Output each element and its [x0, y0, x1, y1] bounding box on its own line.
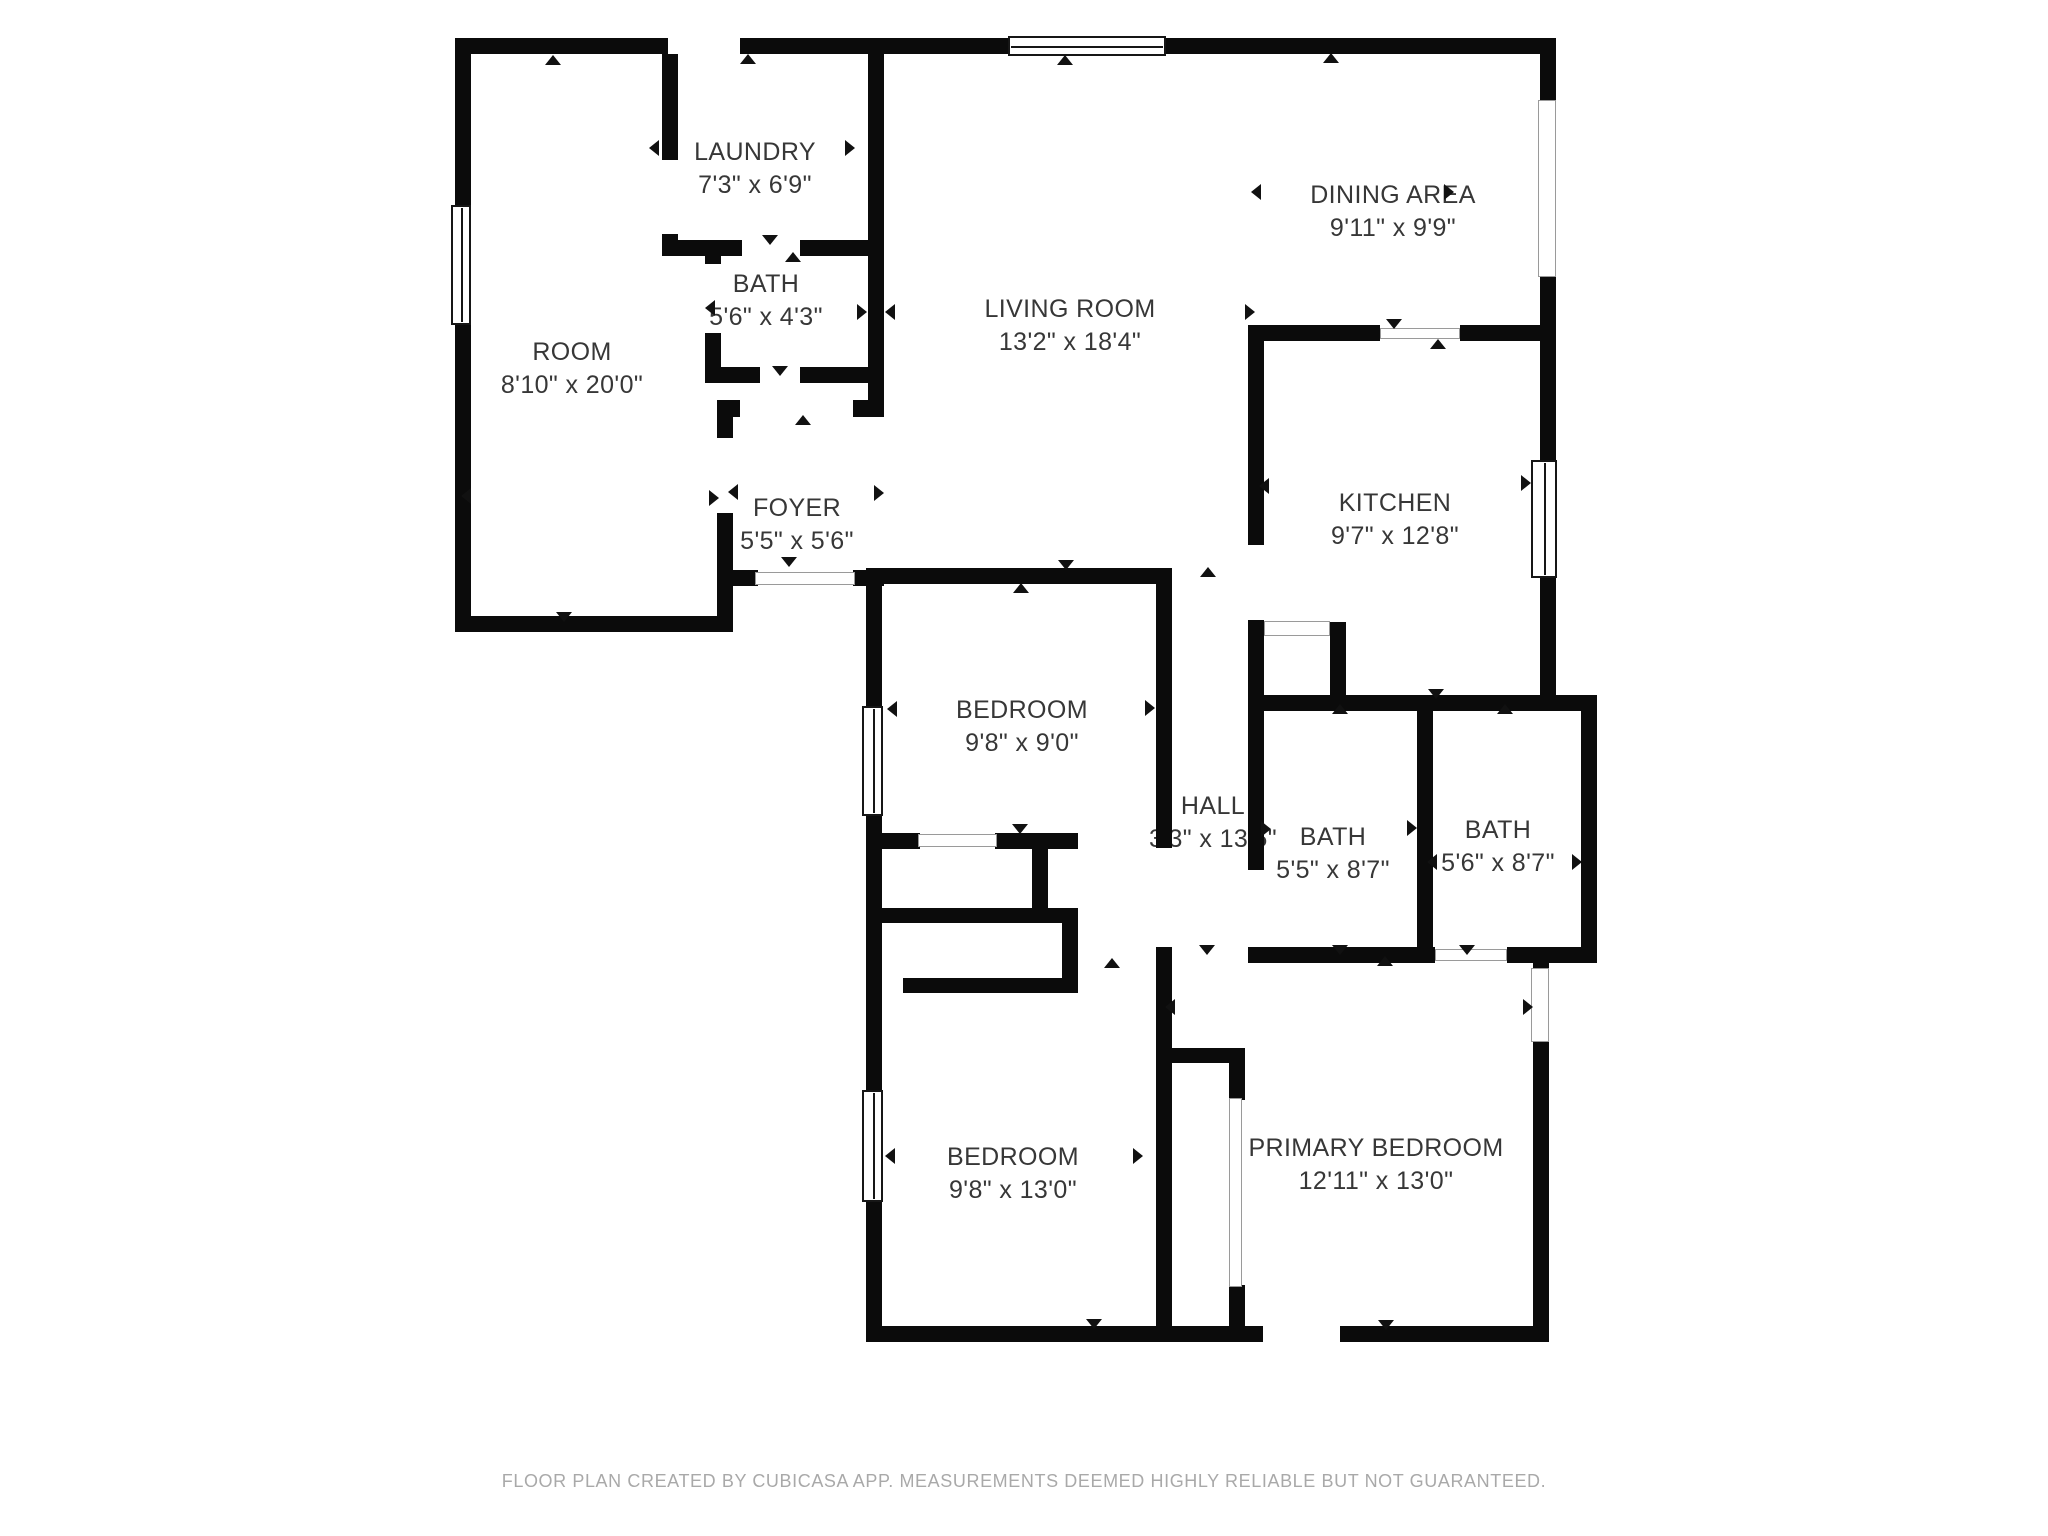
wall: [866, 1326, 1263, 1342]
door-direction-arrow-icon: [1407, 820, 1417, 836]
door-direction-arrow-icon: [1133, 1148, 1143, 1164]
door-direction-arrow-icon: [1145, 700, 1155, 716]
room-dims: 9'7" x 12'8": [1225, 520, 1565, 553]
door-direction-arrow-icon: [1245, 304, 1255, 320]
wall: [1417, 711, 1433, 947]
wall: [455, 38, 668, 54]
door-direction-arrow-icon: [1058, 560, 1074, 570]
wall: [1540, 38, 1556, 102]
window: [862, 1090, 883, 1202]
door-direction-arrow-icon: [1428, 689, 1444, 699]
door-opening: [1531, 968, 1549, 1042]
wall: [1340, 1326, 1549, 1342]
wall: [1062, 908, 1078, 993]
floor-plan: ROOM8'10" x 20'0" LAUNDRY7'3" x 6'9" BAT…: [0, 0, 2048, 1536]
wall: [866, 815, 882, 1092]
room-name: BATH: [596, 268, 936, 301]
window-pane-line: [461, 208, 463, 322]
wall: [455, 616, 733, 632]
wall: [1581, 695, 1597, 963]
door-direction-arrow-icon: [1521, 475, 1531, 491]
wall: [1229, 1048, 1245, 1100]
door-opening: [1538, 100, 1556, 277]
window: [1008, 36, 1166, 56]
door-direction-arrow-icon: [1259, 478, 1269, 494]
wall: [866, 1200, 882, 1342]
door-opening: [1380, 328, 1460, 339]
wall: [995, 833, 1078, 849]
room-dims: 8'10" x 20'0": [402, 369, 742, 402]
door-direction-arrow-icon: [1012, 824, 1028, 834]
room-label-kitchen: KITCHEN9'7" x 12'8": [1225, 487, 1565, 553]
door-direction-arrow-icon: [740, 54, 756, 64]
room-name: LIVING ROOM: [900, 293, 1240, 326]
wall: [1032, 848, 1048, 908]
door-direction-arrow-icon: [1200, 567, 1216, 577]
room-dims: 9'8" x 13'0": [843, 1174, 1183, 1207]
wall: [1166, 38, 1556, 54]
wall: [705, 256, 721, 264]
wall: [800, 367, 884, 383]
door-opening: [755, 572, 855, 585]
window-pane-line: [873, 1093, 875, 1199]
door-opening: [1229, 1098, 1242, 1287]
window-pane-line: [873, 709, 875, 813]
door-direction-arrow-icon: [795, 415, 811, 425]
door-opening: [1264, 621, 1330, 636]
door-direction-arrow-icon: [1332, 945, 1348, 955]
door-direction-arrow-icon: [1057, 55, 1073, 65]
room-name: BEDROOM: [852, 694, 1192, 727]
room-dims: 12'11" x 13'0": [1206, 1165, 1546, 1198]
room-label-room: ROOM8'10" x 20'0": [402, 336, 742, 402]
wall: [740, 38, 1008, 54]
room-name: KITCHEN: [1225, 487, 1565, 520]
room-label-dining-area: DINING AREA9'11" x 9'9": [1223, 179, 1563, 245]
wall: [882, 908, 1078, 923]
room-label-living-room: LIVING ROOM13'2" x 18'4": [900, 293, 1240, 359]
room-label-bedroom-1: BEDROOM9'8" x 9'0": [852, 694, 1192, 760]
wall: [455, 38, 471, 205]
door-direction-arrow-icon: [1378, 1320, 1394, 1330]
wall: [1533, 947, 1549, 970]
door-opening: [918, 834, 997, 847]
room-label-bath-ensuite: BATH5'6" x 8'7": [1328, 814, 1668, 880]
door-direction-arrow-icon: [1497, 704, 1513, 714]
wall: [1248, 325, 1264, 545]
door-direction-arrow-icon: [545, 55, 561, 65]
room-name: FOYER: [627, 492, 967, 525]
room-dims: 5'6" x 8'7": [1328, 847, 1668, 880]
door-direction-arrow-icon: [705, 300, 715, 316]
room-dims: 5'5" x 5'6": [627, 525, 967, 558]
window: [451, 205, 471, 325]
door-direction-arrow-icon: [1523, 999, 1533, 1015]
door-direction-arrow-icon: [1013, 583, 1029, 593]
door-direction-arrow-icon: [762, 235, 778, 245]
door-direction-arrow-icon: [1199, 945, 1215, 955]
wall: [455, 325, 471, 632]
door-direction-arrow-icon: [885, 304, 895, 320]
door-direction-arrow-icon: [1459, 945, 1475, 955]
room-name: ROOM: [402, 336, 742, 369]
wall: [662, 54, 678, 160]
room-dims: 13'2" x 18'4": [900, 326, 1240, 359]
door-direction-arrow-icon: [1165, 999, 1175, 1015]
room-dims: 9'11" x 9'9": [1223, 212, 1563, 245]
wall: [1533, 1040, 1549, 1342]
door-direction-arrow-icon: [1386, 319, 1402, 329]
door-direction-arrow-icon: [785, 252, 801, 262]
wall: [1460, 325, 1556, 341]
door-direction-arrow-icon: [709, 490, 719, 506]
wall: [717, 400, 733, 438]
wall: [1229, 1285, 1245, 1342]
wall: [866, 568, 1172, 584]
wall: [717, 586, 733, 632]
footer-disclaimer: FLOOR PLAN CREATED BY CUBICASA APP. MEAS…: [0, 1471, 2048, 1492]
door-direction-arrow-icon: [556, 612, 572, 622]
wall: [1248, 325, 1380, 341]
room-dims: 9'8" x 9'0": [852, 727, 1192, 760]
window-pane-line: [1011, 46, 1163, 48]
door-direction-arrow-icon: [1332, 704, 1348, 714]
wall: [882, 833, 920, 849]
room-name: BATH: [1328, 814, 1668, 847]
wall: [1156, 568, 1172, 848]
wall: [868, 54, 884, 400]
window: [1531, 460, 1557, 578]
door-direction-arrow-icon: [1323, 53, 1339, 63]
door-direction-arrow-icon: [728, 484, 738, 500]
door-direction-arrow-icon: [1261, 821, 1271, 837]
door-direction-arrow-icon: [649, 140, 659, 156]
door-direction-arrow-icon: [1430, 339, 1446, 349]
door-direction-arrow-icon: [845, 140, 855, 156]
wall: [1540, 575, 1556, 711]
door-direction-arrow-icon: [1572, 854, 1582, 870]
wall: [1248, 695, 1597, 711]
room-name: PRIMARY BEDROOM: [1206, 1132, 1546, 1165]
room-name: DINING AREA: [1223, 179, 1563, 212]
door-direction-arrow-icon: [885, 1148, 895, 1164]
door-direction-arrow-icon: [874, 485, 884, 501]
window: [862, 706, 883, 816]
door-direction-arrow-icon: [1377, 956, 1393, 966]
door-direction-arrow-icon: [1104, 958, 1120, 968]
room-label-foyer: FOYER5'5" x 5'6": [627, 492, 967, 558]
wall: [717, 513, 733, 586]
door-direction-arrow-icon: [1444, 184, 1454, 200]
door-direction-arrow-icon: [857, 304, 867, 320]
door-direction-arrow-icon: [781, 557, 797, 567]
door-direction-arrow-icon: [1427, 854, 1437, 870]
door-direction-arrow-icon: [1251, 184, 1261, 200]
wall: [866, 568, 882, 708]
room-label-bath-top: BATH5'6" x 4'3": [596, 268, 936, 334]
wall: [1507, 947, 1597, 963]
window-pane-line: [1544, 463, 1546, 575]
wall: [705, 367, 760, 383]
wall: [662, 240, 742, 256]
door-direction-arrow-icon: [461, 488, 471, 504]
room-label-primary-bedroom: PRIMARY BEDROOM12'11" x 13'0": [1206, 1132, 1546, 1198]
door-direction-arrow-icon: [772, 366, 788, 376]
wall: [1248, 711, 1264, 870]
wall: [1540, 275, 1556, 463]
door-direction-arrow-icon: [887, 701, 897, 717]
wall: [903, 978, 1078, 993]
door-direction-arrow-icon: [1086, 1319, 1102, 1329]
wall: [853, 400, 884, 417]
